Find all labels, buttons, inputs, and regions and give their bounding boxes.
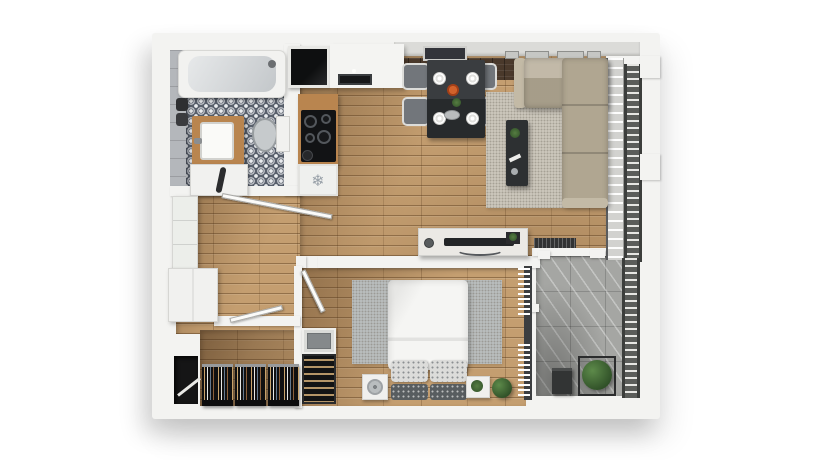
- window-recess: [423, 46, 467, 61]
- wine-unit-screen: [307, 333, 331, 349]
- burner-3: [305, 133, 315, 143]
- speaker: [424, 238, 434, 248]
- pillow-right: [430, 360, 467, 382]
- freezer-snowflake-icon: ❄: [311, 171, 324, 190]
- coffee-table-plant: [510, 128, 520, 138]
- cushion-right: [430, 384, 467, 400]
- sofa-armrest-bottom: [562, 198, 608, 208]
- plate-4: [466, 112, 479, 125]
- sofa-chaise-section: [562, 58, 608, 206]
- coffee-table-bowl: [511, 168, 518, 175]
- balcony-threshold-2: [590, 250, 605, 258]
- curtain-bottom: [518, 344, 530, 396]
- bedroom-north-wall: [318, 256, 540, 268]
- sink-faucet: [194, 138, 202, 144]
- plate-2: [466, 72, 479, 85]
- vanity-sink: [200, 122, 234, 160]
- burner-1: [304, 115, 317, 128]
- table-plant: [452, 98, 461, 107]
- railing-post-top: [640, 56, 660, 78]
- balcony-threshold-1: [538, 251, 550, 259]
- tv-stand-arc: [456, 244, 504, 256]
- hall-cabinet-low: [168, 268, 218, 322]
- burner-4: [317, 130, 331, 144]
- doormat-bench: [534, 238, 576, 248]
- fan-on-nightstand: [367, 379, 383, 395]
- towels-2: [176, 113, 188, 126]
- pillow-left: [391, 360, 428, 382]
- clothes-rack-3: [268, 364, 299, 406]
- dining-chair-2: [402, 97, 430, 126]
- towels: [176, 98, 188, 111]
- closet-entry-wall: [214, 316, 300, 326]
- balcony-cube-planter: [552, 368, 572, 394]
- bedroom-plant: [492, 378, 512, 398]
- clothes-rack-1: [202, 364, 233, 406]
- curtain-top: [518, 268, 530, 316]
- food-dish: [447, 84, 459, 96]
- balcony-plant: [582, 360, 612, 390]
- floor-plan-render: ❄: [0, 0, 818, 460]
- plate-1: [433, 72, 446, 85]
- dining-chair-1: [402, 63, 430, 90]
- kitchen-faucet: [352, 69, 356, 73]
- toilet-tank: [276, 116, 290, 152]
- bathtub-basin: [188, 56, 276, 92]
- bed-duvet: [388, 280, 468, 370]
- clothes-rack-2: [235, 364, 266, 406]
- balcony-railing-lower: [622, 258, 640, 398]
- living-balcony-glass-wall: [606, 58, 624, 260]
- cushion-left: [391, 384, 428, 400]
- railing-post-mid: [640, 154, 660, 180]
- serving-platter: [444, 110, 460, 120]
- wine-rack: [302, 354, 336, 404]
- console-plant: [509, 233, 517, 241]
- burner-2: [321, 114, 331, 124]
- nightstand-plant: [471, 380, 483, 392]
- hall-wardrobe-tall: [172, 196, 198, 270]
- kitchen-sink: [338, 74, 372, 85]
- kettle: [302, 150, 313, 161]
- kitchen-tall-unit: [288, 46, 330, 88]
- fridge-freezer: ❄: [298, 164, 338, 196]
- bathtub-faucet: [268, 60, 276, 68]
